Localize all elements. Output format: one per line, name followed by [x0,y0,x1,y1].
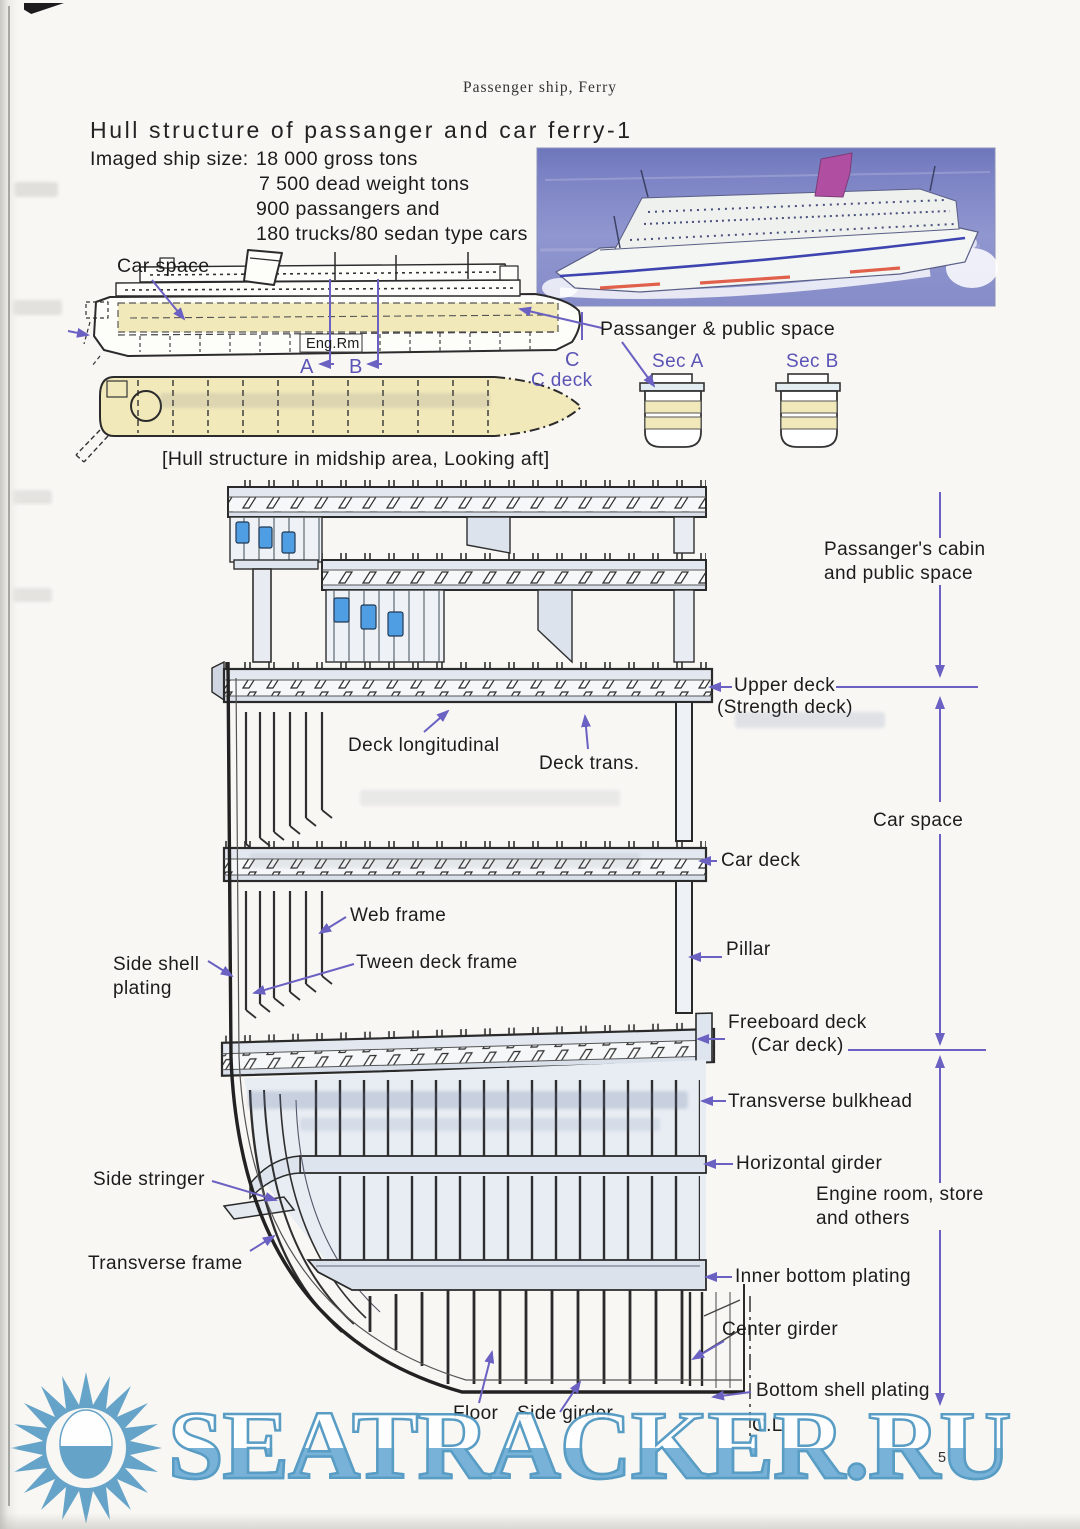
label-eng-rm: Eng.Rm [306,336,360,354]
label-horizontal-girder: Horizontal girder [736,1152,882,1176]
label-car-space-profile: Car space [117,254,209,278]
sun-logo [10,1372,162,1524]
showthrough-smudge [250,853,640,868]
label-transverse-bulkhead: Transverse bulkhead [728,1090,912,1114]
label-sec-a: Sec A [652,350,704,374]
ship-size-line3: 900 passangers and [256,197,440,221]
label-deck-longitudinal: Deck longitudinal [348,734,500,758]
profile-funnel [244,250,282,285]
showthrough-smudge [12,490,52,504]
label-side-stringer: Side stringer [93,1168,205,1192]
label-bottom-shell-plating: Bottom shell plating [756,1379,930,1403]
label-floor: Floor [453,1402,498,1426]
page-title: Hull structure of passanger and car ferr… [90,116,633,145]
ship-size-label: Imaged ship size: [90,147,249,171]
center-girder-lines [690,1292,702,1386]
ship-size-line4: 180 trucks/80 sedan type cars [256,222,528,246]
label-section-b: B [349,355,363,380]
label-tween-deck-frame: Tween deck frame [356,951,518,975]
label-transverse-frame: Transverse frame [88,1252,243,1276]
label-engine-room: Engine room, store and others [812,1183,988,1230]
showthrough-smudge [12,300,62,315]
label-passangers-cabin: Passanger's cabin and public space [820,538,989,585]
showthrough-smudge [160,393,490,408]
label-upper-deck: Upper deck [734,674,835,698]
showthrough-smudge [248,1091,688,1109]
label-section-a: A [300,355,314,380]
label-inner-bottom-plating: Inner bottom plating [735,1265,911,1289]
label-center-line: C.L [752,1414,783,1438]
scan-edge-line [8,6,10,1506]
showthrough-smudge [300,1118,660,1131]
label-deck-trans: Deck trans. [539,752,640,776]
showthrough-smudge [360,790,620,806]
scan-edge-bottom [0,1513,1080,1529]
page-number: 5 [938,1450,946,1468]
label-pillar: Pillar [726,938,771,962]
label-side-shell-plating: Side shell plating [113,953,199,1000]
sec-b-glyph [776,374,840,447]
label-passanger-public-space: Passanger & public space [600,317,835,341]
showthrough-smudge [12,588,52,602]
label-car-deck: Car deck [721,849,800,873]
pillar-lower [676,881,692,1013]
showthrough-smudge [735,712,885,728]
running-title: Passenger ship, Ferry [0,78,1080,97]
ship-size-line1: 18 000 gross tons [256,147,418,171]
label-freeboard-deck-sub: (Car deck) [751,1034,844,1058]
label-c-deck: C deck [531,369,593,393]
label-center-girder: Center girder [722,1318,838,1342]
horizontal-girder-band [300,1156,706,1173]
scanned-book-page: Passenger ship, Ferry Hull structure of … [0,0,1080,1529]
label-car-space-dim: Car space [869,809,967,833]
label-sec-b: Sec B [786,350,839,374]
label-side-girder: Side girder [517,1402,613,1426]
pillar-upper [676,702,692,841]
profile-caption: [Hull structure in midship area, Looking… [162,447,550,471]
label-freeboard-deck: Freeboard deck [728,1011,867,1035]
label-web-frame: Web frame [350,904,446,928]
ship-size-line2: 7 500 dead weight tons [259,172,469,196]
inner-bottom-plate [308,1260,706,1290]
sec-a-glyph [640,374,704,447]
ferry-photo [537,148,998,306]
showthrough-smudge [14,182,58,197]
